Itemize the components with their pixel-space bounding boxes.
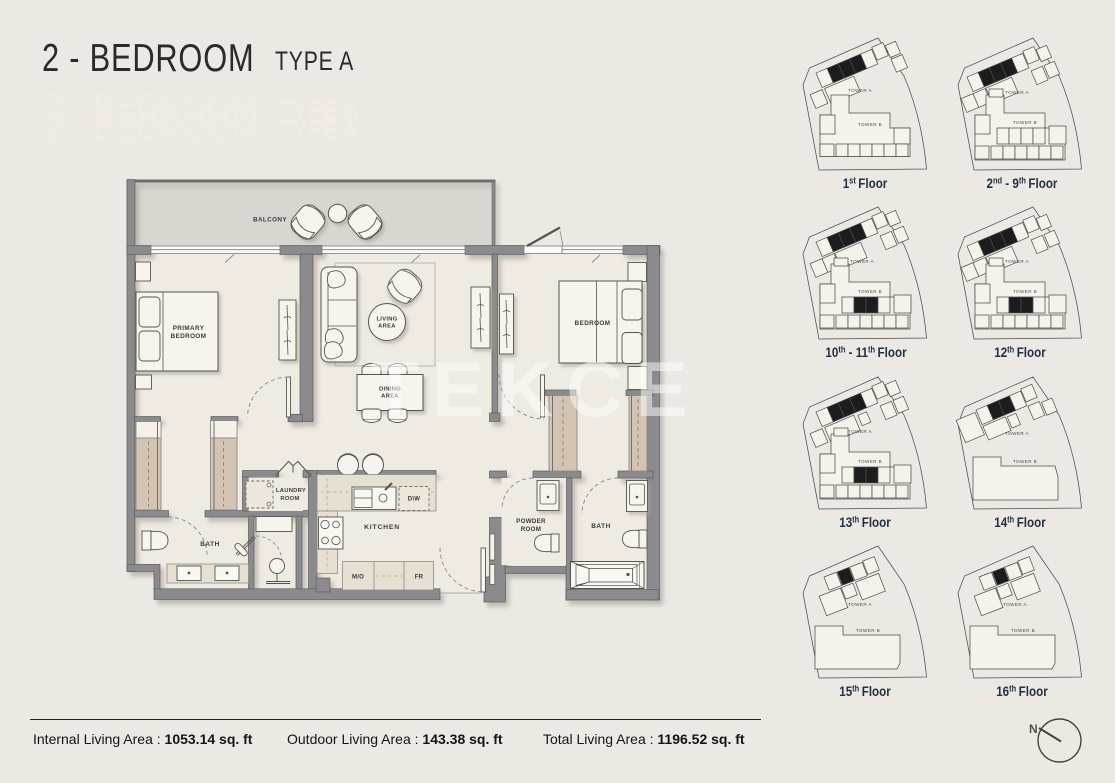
svg-text:POWDER: POWDER xyxy=(516,518,546,525)
svg-text:TOWER A: TOWER A xyxy=(1003,602,1027,607)
svg-text:15thFloor: 15thFloor xyxy=(839,683,891,699)
svg-text:LIVING: LIVING xyxy=(376,317,397,323)
svg-text:TOWER B: TOWER B xyxy=(858,459,882,464)
svg-text:14thFloor: 14thFloor xyxy=(994,514,1046,530)
svg-text:KITCHEN: KITCHEN xyxy=(364,524,400,531)
svg-text:12thFloor: 12thFloor xyxy=(994,344,1046,360)
svg-text:BALCONY: BALCONY xyxy=(253,217,287,224)
svg-text:TOWER B: TOWER B xyxy=(1013,459,1037,464)
svg-text:TOWER A: TOWER A xyxy=(848,88,872,93)
svg-text:TOWER B: TOWER B xyxy=(1011,628,1035,633)
svg-text:BATH: BATH xyxy=(200,541,220,548)
svg-text:TOWER A: TOWER A xyxy=(850,259,874,264)
svg-text:BEDROOM: BEDROOM xyxy=(171,333,207,340)
svg-text:TOWER A: TOWER A xyxy=(848,602,872,607)
svg-text:TOWER A: TOWER A xyxy=(1005,90,1029,95)
svg-text:TEKCE: TEKCE xyxy=(371,345,700,433)
svg-text:TOWER B: TOWER B xyxy=(856,628,880,633)
svg-text:TOWER B: TOWER B xyxy=(1013,289,1037,294)
svg-text:LAUNDRY: LAUNDRY xyxy=(276,488,306,494)
svg-text:13thFloor: 13thFloor xyxy=(839,514,891,530)
svg-text:ROOM: ROOM xyxy=(521,526,541,533)
svg-text:2nd - 9thFloor: 2nd - 9thFloor xyxy=(986,175,1057,191)
svg-text:D\W: D\W xyxy=(408,497,421,503)
svg-text:1stFloor: 1stFloor xyxy=(843,175,888,191)
svg-text:ROOM: ROOM xyxy=(280,496,299,502)
svg-text:16thFloor: 16thFloor xyxy=(996,683,1048,699)
svg-text:TOWER B: TOWER B xyxy=(858,289,882,294)
svg-text:AREA: AREA xyxy=(378,324,396,330)
svg-text:BEDROOM: BEDROOM xyxy=(575,320,611,327)
svg-text:BATH: BATH xyxy=(591,523,611,530)
svg-text:10th - 11thFloor: 10th - 11thFloor xyxy=(825,344,906,360)
svg-text:TOWER A: TOWER A xyxy=(1005,259,1029,264)
svg-text:TOWER B: TOWER B xyxy=(1013,120,1037,125)
svg-text:TOWER B: TOWER B xyxy=(858,122,882,127)
svg-text:M/O: M/O xyxy=(352,575,364,581)
svg-text:TOWER A: TOWER A xyxy=(848,429,872,434)
svg-text:FR: FR xyxy=(415,575,424,581)
svg-text:TOWER A: TOWER A xyxy=(1005,431,1029,436)
svg-text:PRIMARY: PRIMARY xyxy=(173,325,205,332)
svg-text:N: N xyxy=(1029,722,1038,736)
